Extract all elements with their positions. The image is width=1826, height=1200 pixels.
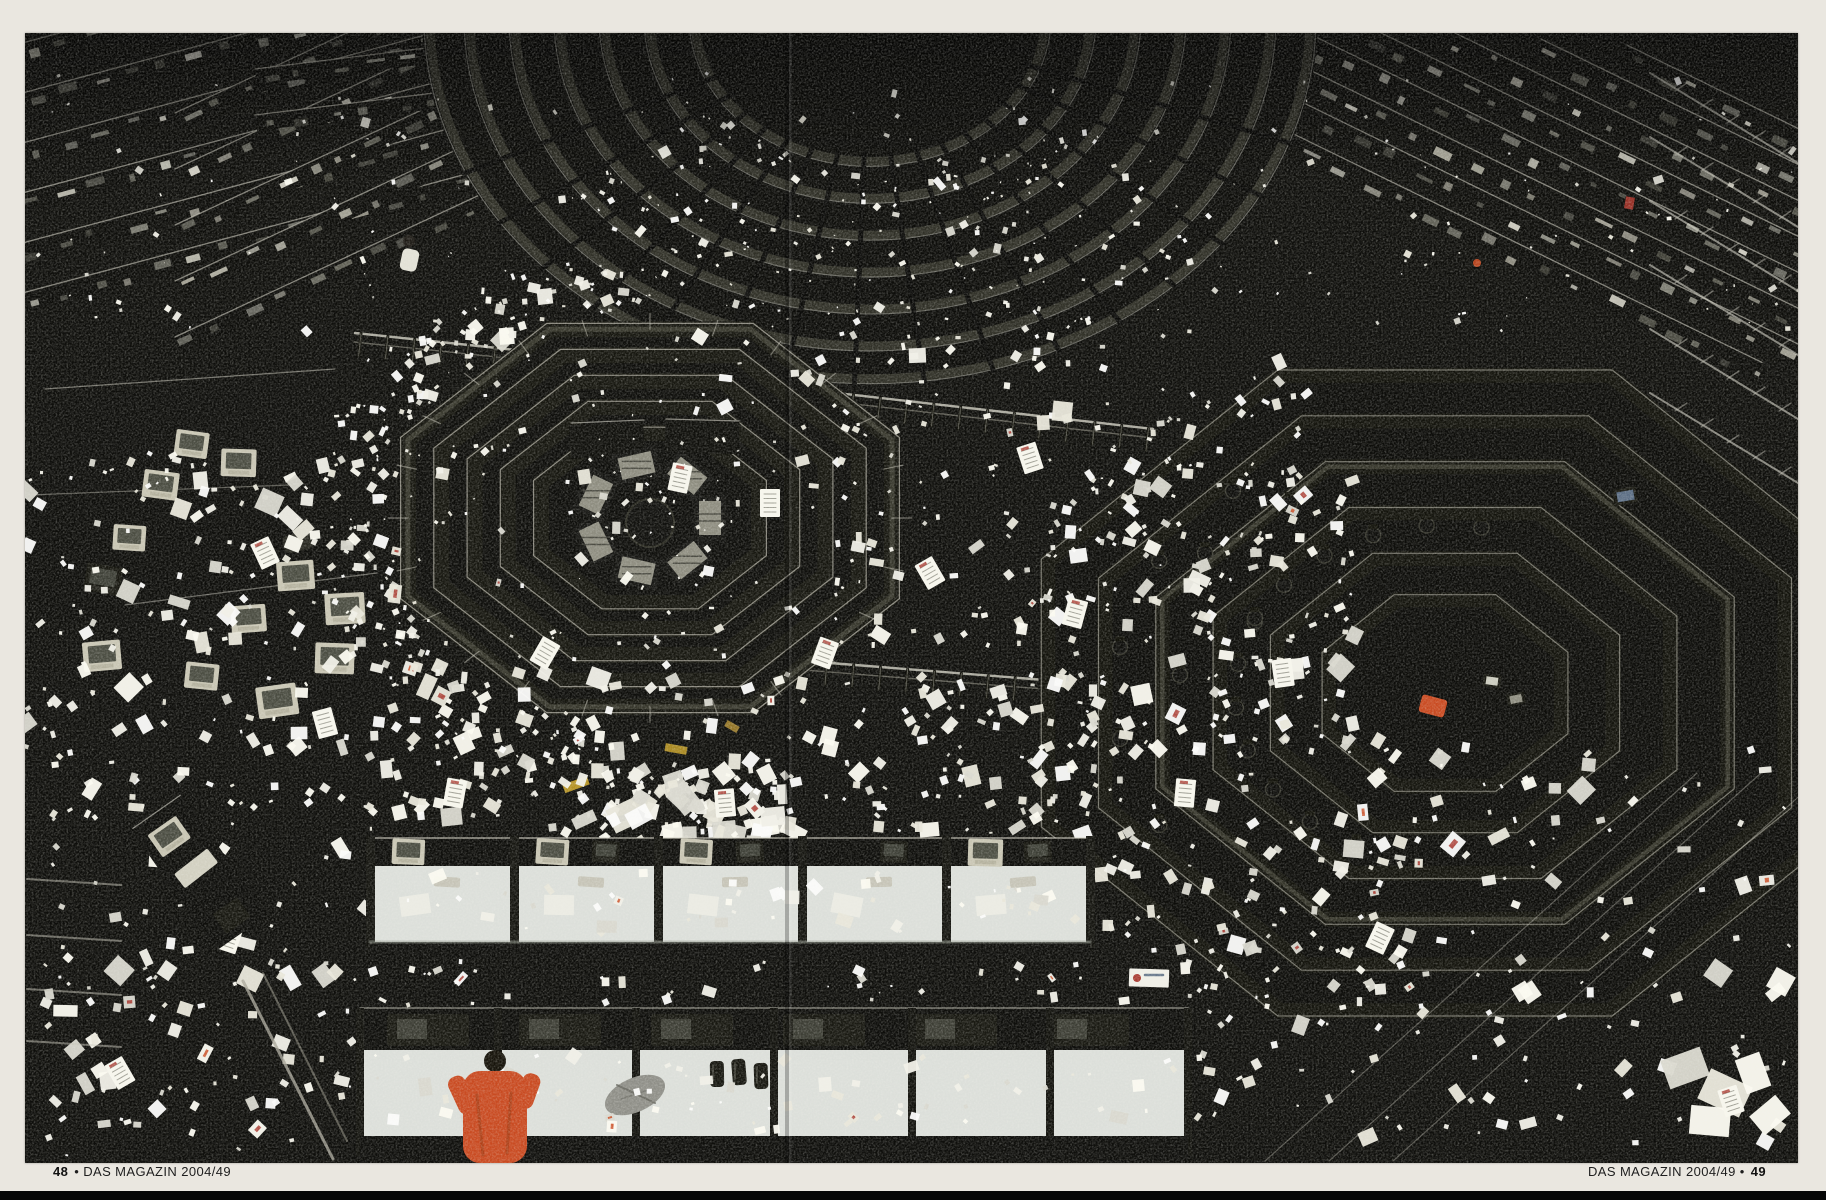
caption-left: 48 • DAS MAGAZIN 2004/49 (53, 1164, 231, 1179)
right-page-number: 49 (1751, 1164, 1766, 1179)
page-captions: 48 • DAS MAGAZIN 2004/49 DAS MAGAZIN 200… (53, 1162, 1766, 1180)
magazine-spread-scan: 48 • DAS MAGAZIN 2004/49 DAS MAGAZIN 200… (0, 0, 1826, 1200)
scan-edge-bar (0, 1191, 1826, 1200)
left-caption-text: • DAS MAGAZIN 2004/49 (74, 1164, 231, 1179)
caption-right: DAS MAGAZIN 2004/49 • 49 (1588, 1164, 1766, 1179)
photo-frame (25, 33, 1798, 1163)
trading-floor-photo (25, 33, 1798, 1163)
right-caption-text: DAS MAGAZIN 2004/49 • (1588, 1164, 1745, 1179)
left-page-number: 48 (53, 1164, 68, 1179)
